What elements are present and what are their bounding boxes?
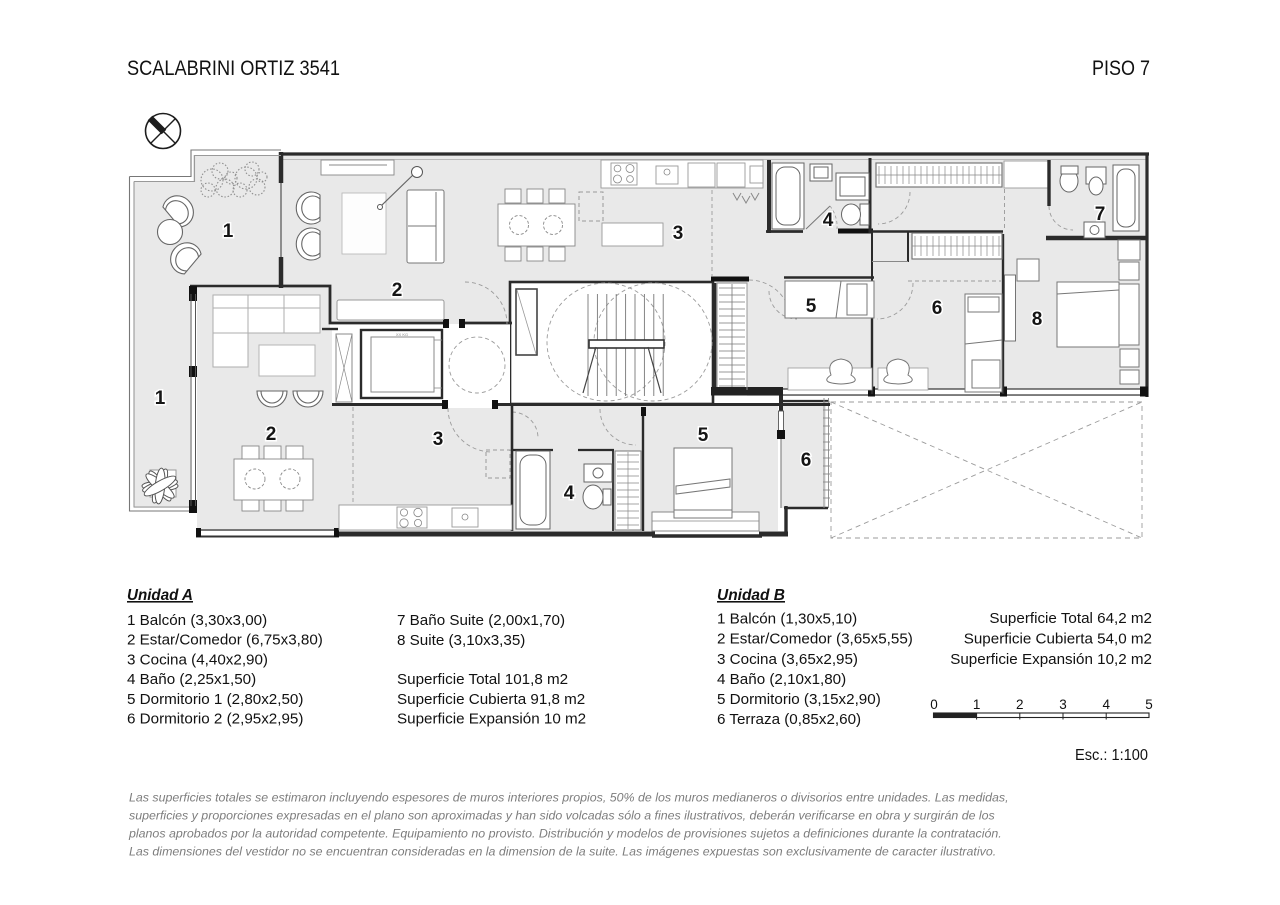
svg-text:Superficie Total 64,2 m2: Superficie Total 64,2 m2 — [989, 610, 1152, 627]
svg-text:5: 5 — [1145, 697, 1153, 712]
svg-text:1 Balcón (3,30x3,00): 1 Balcón (3,30x3,00) — [127, 612, 267, 629]
svg-text:3 Cocina (4,40x2,90): 3 Cocina (4,40x2,90) — [127, 651, 268, 668]
svg-text:2 Estar/Comedor (3,65x5,55): 2 Estar/Comedor (3,65x5,55) — [717, 631, 913, 648]
svg-text:Esc.: 1:100: Esc.: 1:100 — [1075, 747, 1148, 764]
svg-text:1 Balcón (1,30x5,10): 1 Balcón (1,30x5,10) — [717, 611, 857, 628]
svg-text:Unidad A: Unidad A — [127, 587, 193, 604]
svg-text:4 Baño (2,25x1,50): 4 Baño (2,25x1,50) — [127, 671, 256, 688]
svg-text:4: 4 — [1102, 697, 1110, 712]
svg-text:SCALABRINI ORTIZ 3541: SCALABRINI ORTIZ 3541 — [127, 56, 340, 80]
svg-text:1: 1 — [155, 388, 166, 409]
svg-text:5: 5 — [698, 425, 709, 446]
svg-text:2: 2 — [266, 424, 277, 445]
svg-text:2 Estar/Comedor (6,75x3,80): 2 Estar/Comedor (6,75x3,80) — [127, 632, 323, 649]
svg-text:7: 7 — [1095, 204, 1106, 225]
svg-text:6 Dormitorio 2 (2,95x2,95): 6 Dormitorio 2 (2,95x2,95) — [127, 711, 303, 728]
svg-text:4: 4 — [564, 483, 575, 504]
svg-text:Las dimensiones del vestidor n: Las dimensiones del vestidor no se encue… — [129, 845, 996, 859]
svg-text:6 Terraza (0,85x2,60): 6 Terraza (0,85x2,60) — [717, 711, 861, 728]
svg-text:2: 2 — [392, 280, 403, 301]
svg-text:6: 6 — [801, 450, 812, 471]
svg-text:8: 8 — [1032, 309, 1043, 330]
svg-text:Superficie Cubierta 91,8 m2: Superficie Cubierta 91,8 m2 — [397, 691, 585, 708]
svg-text:4: 4 — [823, 210, 834, 231]
svg-text:Unidad B: Unidad B — [717, 587, 785, 604]
svg-text:4 Baño (2,10x1,80): 4 Baño (2,10x1,80) — [717, 671, 846, 688]
svg-text:3 Cocina (3,65x2,95): 3 Cocina (3,65x2,95) — [717, 651, 858, 668]
svg-text:5: 5 — [806, 296, 817, 317]
svg-text:Superficie Expansión 10 m2: Superficie Expansión 10 m2 — [397, 711, 586, 728]
svg-text:1: 1 — [973, 697, 981, 712]
svg-text:Las superficies totales se est: Las superficies totales se estimaron inc… — [129, 791, 1009, 805]
svg-text:Superficie Total 101,8 m2: Superficie Total 101,8 m2 — [397, 671, 568, 688]
svg-text:8 Suite (3,10x3,35): 8 Suite (3,10x3,35) — [397, 632, 525, 649]
svg-text:3: 3 — [1059, 697, 1067, 712]
svg-text:5 Dormitorio (3,15x2,90): 5 Dormitorio (3,15x2,90) — [717, 691, 881, 708]
svg-text:0: 0 — [930, 697, 938, 712]
svg-text:5 Dormitorio 1 (2,80x2,50): 5 Dormitorio 1 (2,80x2,50) — [127, 691, 303, 708]
svg-text:6: 6 — [932, 298, 943, 319]
svg-text:7 Baño Suite (2,00x1,70): 7 Baño Suite (2,00x1,70) — [397, 612, 565, 629]
svg-text:3: 3 — [433, 429, 444, 450]
svg-text:superficies y proporciones exp: superficies y proporciones expresadas en… — [129, 809, 995, 823]
svg-text:1: 1 — [223, 221, 234, 242]
svg-text:planos aprobados por la autori: planos aprobados por la autoridad compet… — [128, 827, 1002, 841]
svg-text:Superficie Expansión 10,2 m2: Superficie Expansión 10,2 m2 — [950, 651, 1152, 668]
svg-text:Superficie Cubierta 54,0 m2: Superficie Cubierta 54,0 m2 — [964, 631, 1152, 648]
svg-text:2: 2 — [1016, 697, 1024, 712]
svg-text:3: 3 — [673, 223, 684, 244]
svg-text:XX KG: XX KG — [396, 332, 408, 337]
svg-text:PISO 7: PISO 7 — [1092, 56, 1150, 80]
